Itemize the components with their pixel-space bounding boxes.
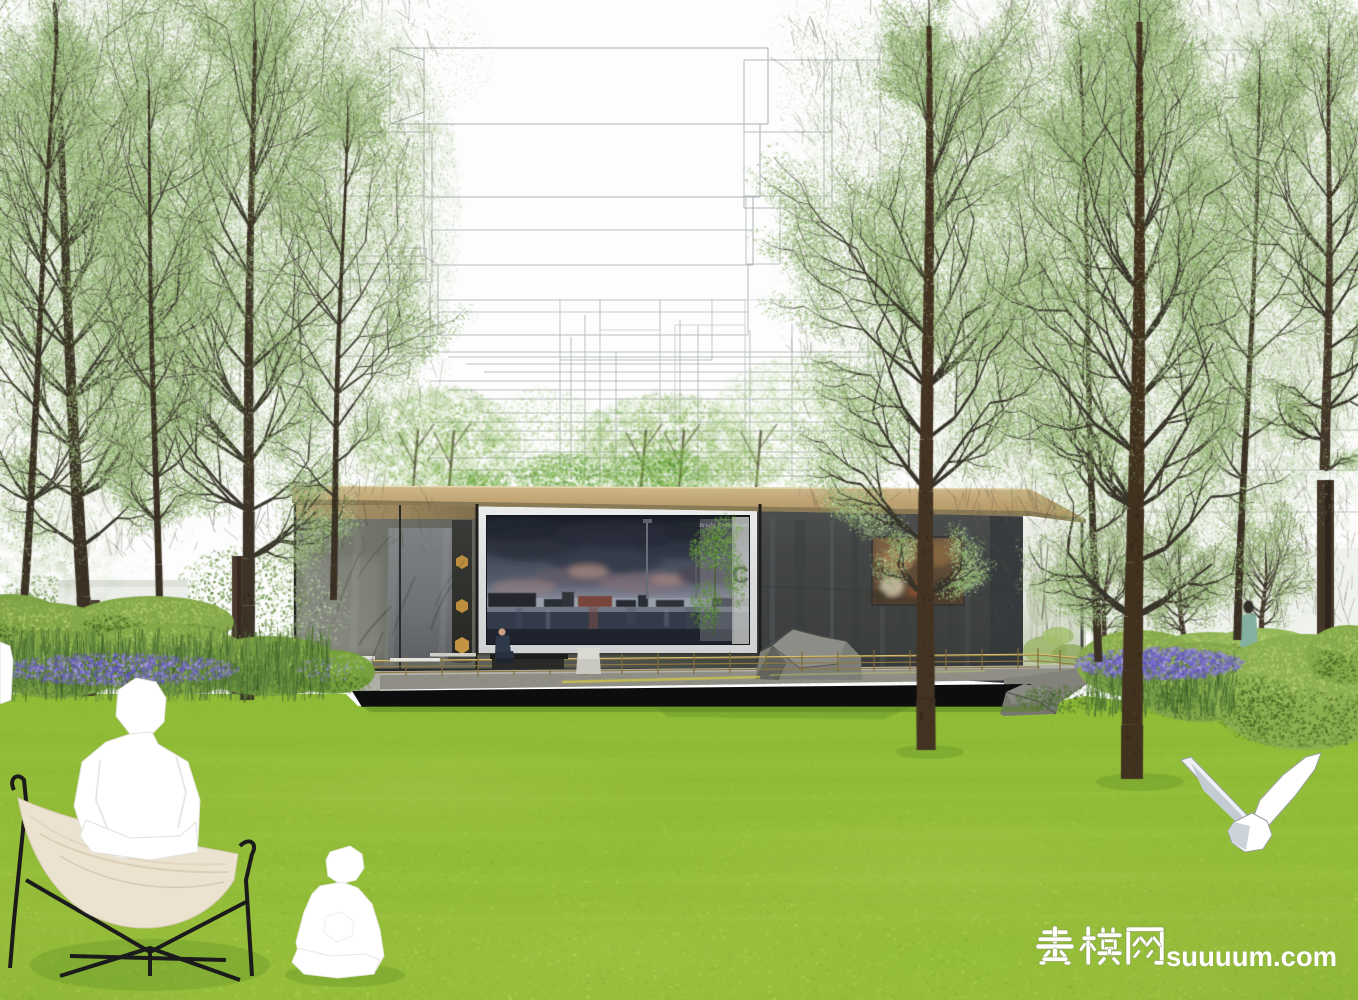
svg-text:suuuum.com: suuuum.com	[1166, 941, 1337, 972]
